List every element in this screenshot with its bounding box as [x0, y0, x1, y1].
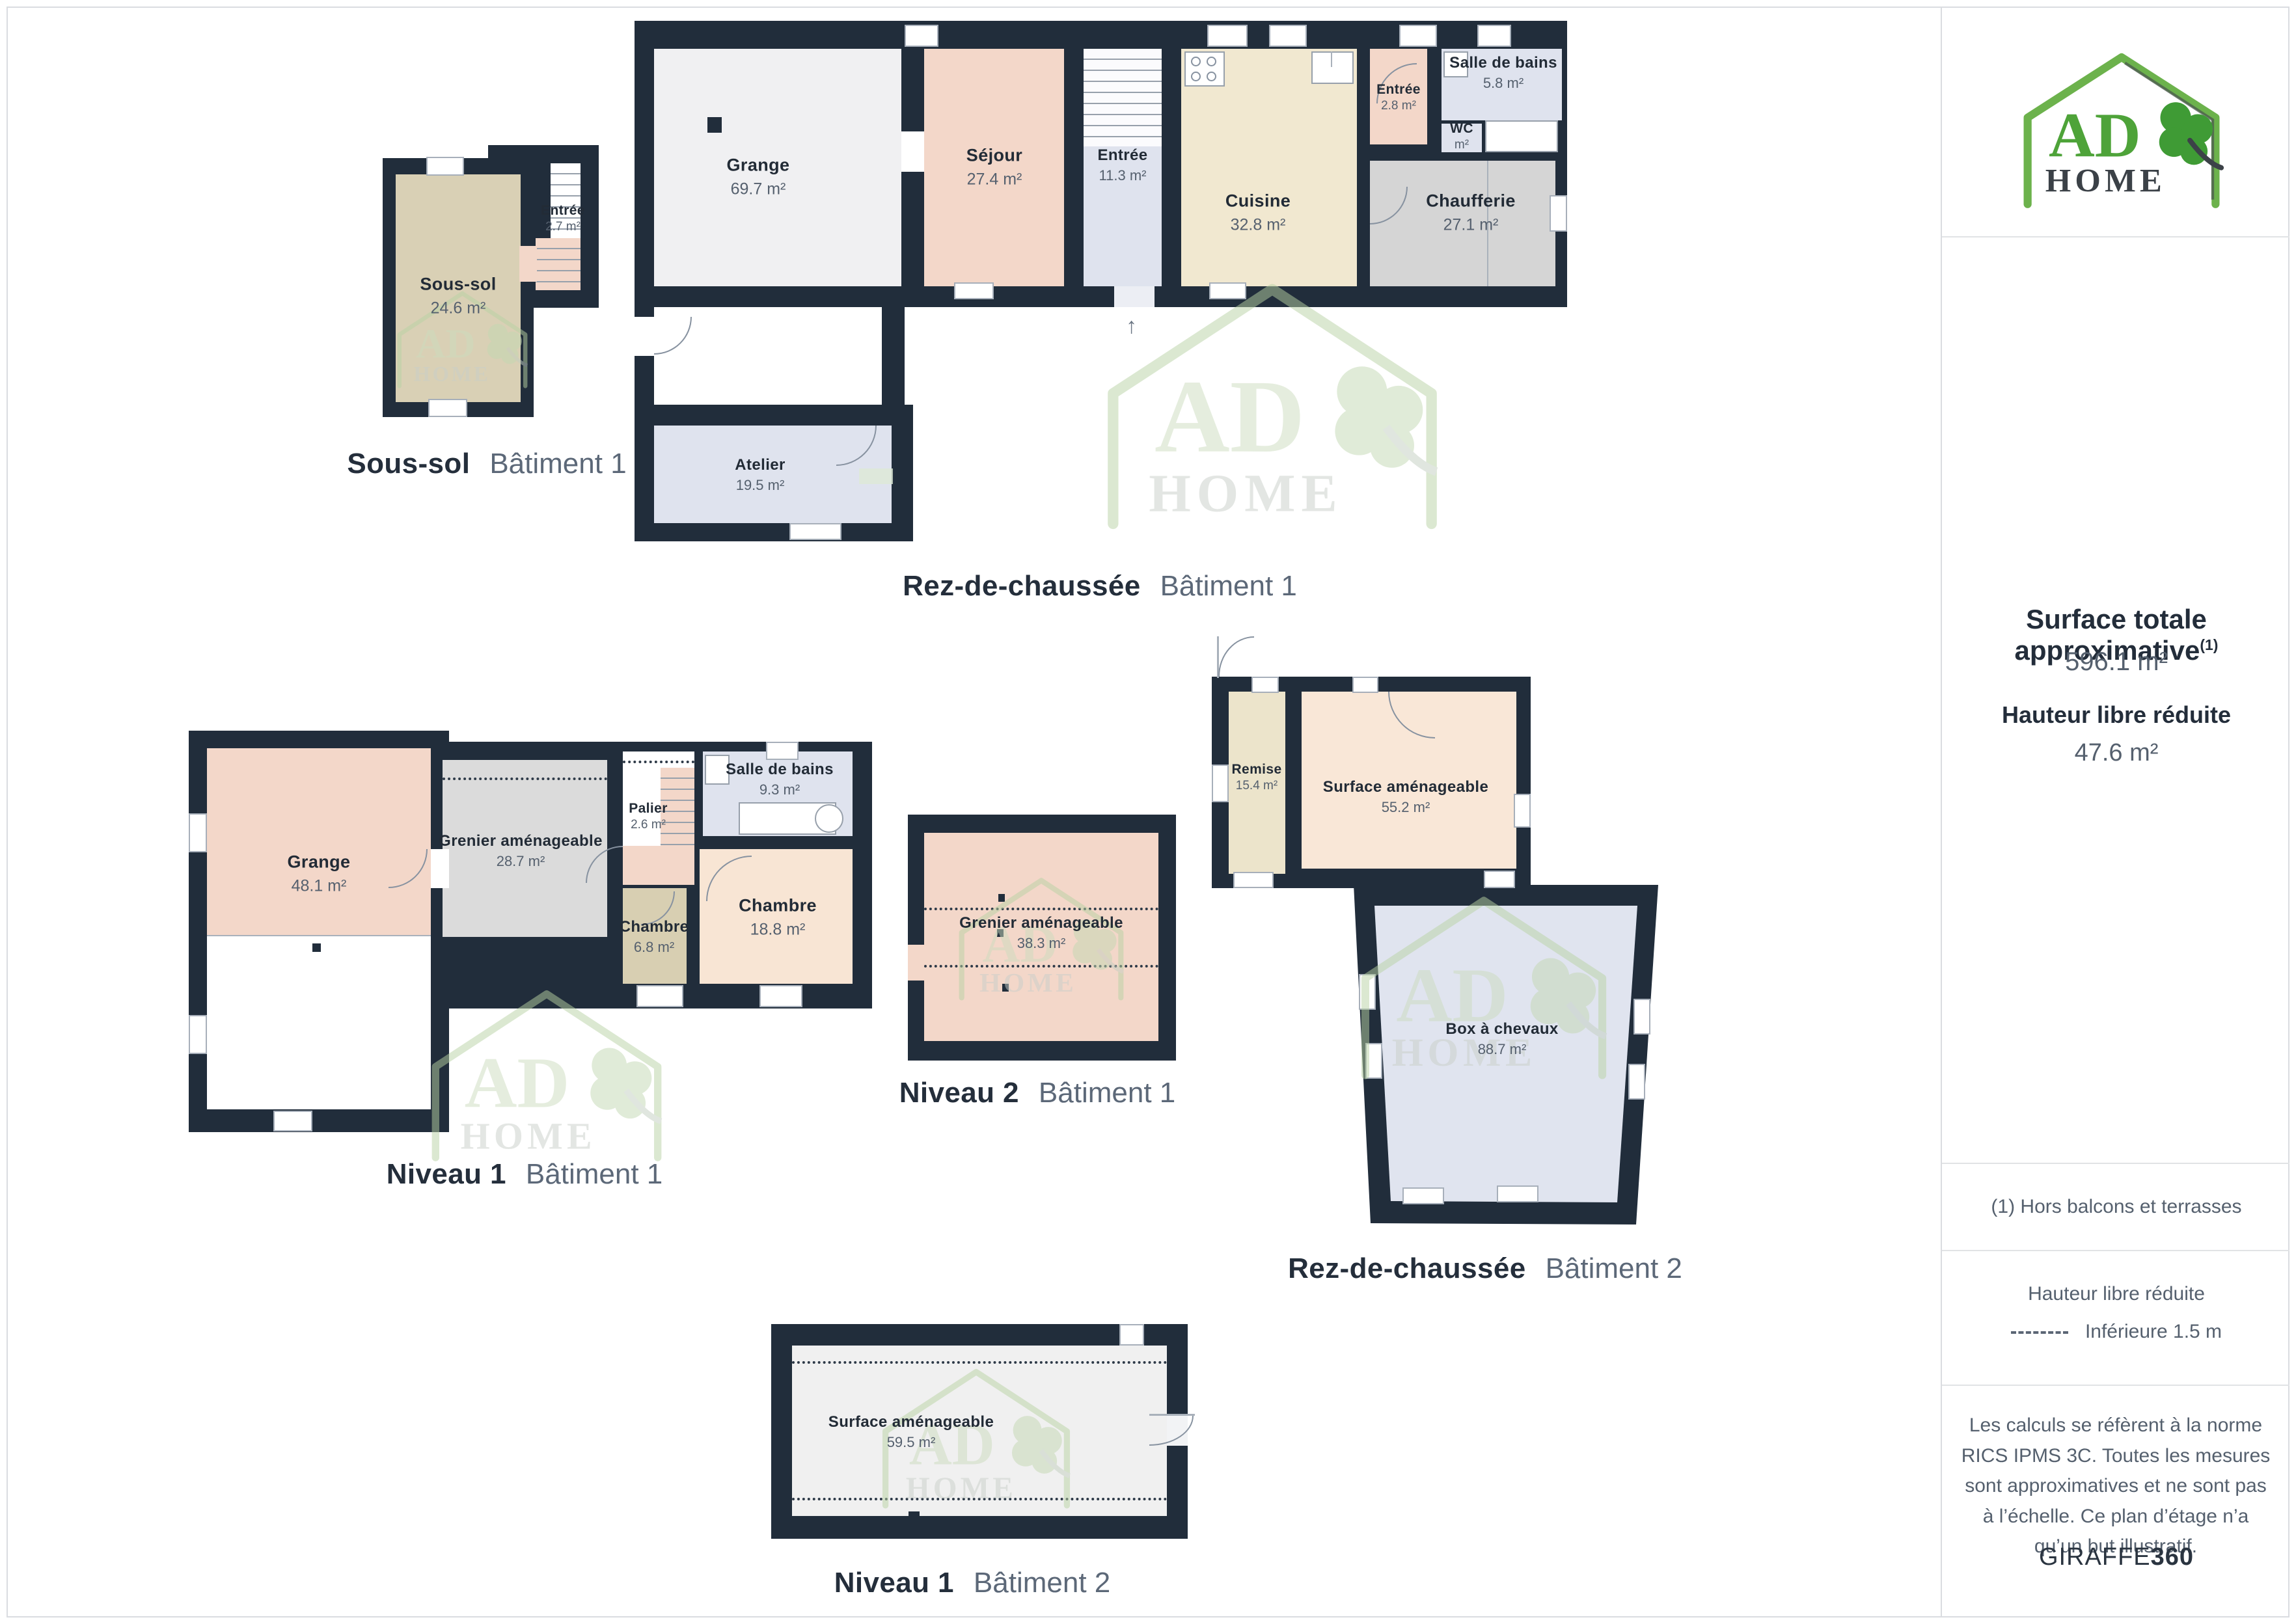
- window: [1633, 999, 1650, 1035]
- exit-arrow-icon: ↑: [1126, 314, 1137, 339]
- room-label-wc: WC m²: [1450, 121, 1473, 152]
- reduced-height-line: [623, 761, 694, 763]
- room-entree: [536, 238, 581, 290]
- plan-niveau2-b1: Grenier aménageable 38.3 m²: [908, 815, 1176, 1061]
- window: [1119, 1324, 1144, 1346]
- reduced-height-value: 47.6 m²: [1942, 739, 2291, 767]
- room-label-grenier: Grenier aménageable 38.3 m²: [959, 914, 1123, 952]
- room-label-surface-amenageable: Surface aménageable 59.5 m²: [828, 1413, 994, 1451]
- plan-sous-sol-b1: Sous-sol 24.6 m² Entrée 2.7 m²: [383, 145, 599, 418]
- footnote: (1) Hors balcons et terrasses: [1942, 1196, 2291, 1218]
- surface-total-value: 596.1 m²: [1942, 647, 2291, 677]
- reduced-height-line: [924, 965, 1158, 968]
- burner-icon: [1191, 57, 1201, 66]
- room-label-chambre-2: Chambre 18.8 m²: [739, 896, 817, 940]
- window: [1365, 1043, 1382, 1079]
- plan-title-niveau1-b2: Niveau 1Bâtiment 2: [834, 1567, 1111, 1599]
- sidebar-section-divider: [1942, 1163, 2289, 1164]
- room-label-grange: Grange 48.1 m²: [288, 852, 351, 896]
- window: [189, 1015, 207, 1054]
- burner-icon: [1207, 72, 1216, 81]
- plan-rdc-b1: ↑ Grange 69.7 m² Séjour 27.4 m² Entrée 1…: [635, 21, 1568, 541]
- sidebar-section-divider: [1942, 236, 2289, 237]
- sidebar-section-divider: [1942, 1250, 2289, 1251]
- svg-text:AD: AD: [2049, 100, 2141, 170]
- room-label-entree-2: Entrée 2.8 m²: [1376, 82, 1421, 113]
- hallway: [623, 846, 694, 885]
- sink-icon: [1311, 51, 1354, 84]
- door-opening: [901, 131, 924, 172]
- window: [1399, 25, 1437, 47]
- door-mat: [859, 468, 893, 484]
- watermark-logo: [999, 268, 1546, 548]
- dashed-line-icon: [2011, 1331, 2068, 1334]
- legend-row: Inférieure 1.5 m: [1942, 1321, 2291, 1343]
- plan-title-sous-sol-b1: Sous-solBâtiment 1: [347, 448, 626, 480]
- reduced-height-line: [792, 1361, 1167, 1364]
- window: [766, 742, 799, 760]
- room-label-box-a-chevaux: Box à chevaux 88.7 m²: [1445, 1020, 1558, 1058]
- window: [759, 985, 802, 1007]
- sidebar-section-divider: [1942, 1385, 2289, 1386]
- room-divider-line: [207, 935, 431, 936]
- reduced-height-line: [443, 778, 607, 780]
- room-label-remise: Remise 15.4 m²: [1231, 762, 1281, 793]
- reduced-height-heading: Hauteur libre réduite: [1942, 701, 2291, 729]
- window: [1628, 1064, 1645, 1100]
- room-label-grenier: Grenier aménageable 28.7 m²: [439, 832, 603, 870]
- door-opening: [635, 317, 654, 356]
- open-area: [207, 935, 431, 1109]
- room-grange: [207, 748, 431, 935]
- window: [1269, 25, 1307, 47]
- window: [954, 282, 994, 299]
- room-label-salle-de-bains: Salle de bains 9.3 m²: [726, 761, 834, 798]
- reduced-height-line: [792, 1498, 1167, 1500]
- room-label-chaufferie: Chaufferie 27.1 m²: [1426, 191, 1516, 235]
- window: [1359, 974, 1376, 1010]
- bathtub-icon: [1485, 120, 1558, 152]
- room-label-salle-de-bains: Salle de bains 5.8 m²: [1449, 54, 1557, 92]
- stove-icon: [1184, 51, 1225, 87]
- plan-title-rdc-b2: Rez-de-chausséeBâtiment 2: [1288, 1252, 1682, 1285]
- window: [1352, 677, 1378, 693]
- post: [1002, 984, 1009, 992]
- plan-rdc-b2: Remise 15.4 m² Surface aménageable 55.2 …: [1210, 631, 1757, 1226]
- adhome-logo: AD HOME: [2008, 33, 2235, 228]
- giraffe360-credit: GIRAFFE360: [1942, 1543, 2291, 1571]
- window: [1484, 871, 1515, 888]
- plan-title-rdc-b1: Rez-de-chausséeBâtiment 1: [903, 570, 1297, 602]
- plan-title-niveau2-b1: Niveau 2Bâtiment 1: [899, 1077, 1176, 1109]
- room-grenier-extension: [908, 945, 924, 981]
- window: [1207, 25, 1248, 47]
- pillar: [707, 117, 722, 133]
- window: [636, 985, 683, 1007]
- entry-door-arc: [1218, 636, 1254, 677]
- legend-title: Hauteur libre réduite: [1942, 1283, 2291, 1305]
- window: [1212, 765, 1229, 802]
- window: [1233, 872, 1274, 888]
- window: [1550, 195, 1567, 232]
- room-label-cuisine: Cuisine 32.8 m²: [1225, 191, 1291, 235]
- window: [426, 157, 464, 176]
- window: [789, 523, 841, 540]
- stairwell: [1084, 49, 1162, 146]
- burner-icon: [1191, 72, 1201, 81]
- round-tub-icon: [815, 804, 843, 833]
- plan-niveau1-b1: Grange 48.1 m² Grenier aménageable 28.7 …: [189, 729, 872, 1135]
- window: [1514, 794, 1531, 828]
- room-label-sejour: Séjour 27.4 m²: [966, 146, 1022, 189]
- window: [1402, 1187, 1444, 1204]
- wall: [882, 307, 905, 405]
- door-opening: [519, 246, 537, 282]
- svg-text:HOME: HOME: [2045, 163, 2166, 199]
- room-label-sous-sol: Sous-sol 24.6 m²: [420, 275, 496, 318]
- sink-line: [1331, 51, 1332, 67]
- window: [1251, 677, 1279, 693]
- window: [905, 25, 938, 47]
- post: [998, 894, 1005, 902]
- window: [273, 1111, 312, 1131]
- window: [1477, 25, 1511, 47]
- plan-title-niveau1-b1: Niveau 1Bâtiment 1: [387, 1158, 663, 1191]
- door-opening: [1114, 286, 1155, 307]
- room-label-atelier: Atelier 19.5 m²: [735, 456, 786, 494]
- sidebar-divider: [1941, 8, 1942, 1616]
- room-label-grange: Grange 69.7 m²: [727, 156, 790, 199]
- disclaimer: Les calculs se réfèrent à la norme RICS …: [1959, 1411, 2273, 1562]
- burner-icon: [1207, 57, 1216, 66]
- window: [1209, 282, 1246, 299]
- wall-stub: [909, 1511, 920, 1523]
- window: [1497, 1185, 1538, 1202]
- room-label-surface-amenageable: Surface aménageable 55.2 m²: [1323, 778, 1488, 816]
- plan-niveau1-b2: Surface aménageable 59.5 m²: [771, 1324, 1188, 1539]
- room-label-chambre-1: Chambre 6.8 m²: [620, 918, 689, 956]
- room-label-entree: Entrée 2.7 m²: [541, 203, 585, 234]
- room-label-entree: Entrée 11.3 m²: [1097, 146, 1147, 184]
- window: [189, 813, 207, 852]
- room-label-palier: Palier 2.6 m²: [629, 801, 668, 832]
- pillar: [312, 943, 321, 952]
- reduced-height-line: [924, 908, 1158, 910]
- window: [428, 399, 467, 417]
